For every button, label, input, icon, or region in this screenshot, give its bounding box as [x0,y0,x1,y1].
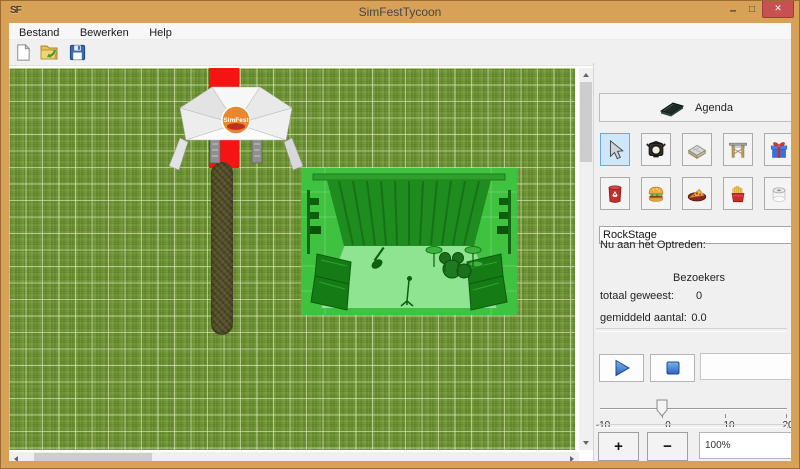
zoom-level-field[interactable]: 100% [699,432,791,459]
gate-icon [727,139,749,161]
trash-can-icon [605,183,625,205]
agenda-button[interactable]: Agenda [599,93,791,122]
tool-select-cursor[interactable] [600,133,630,166]
entrance-tent[interactable]: SimFest [166,80,306,172]
tent-logo-text: SimFest [223,117,249,124]
festival-map[interactable]: SimFest [9,68,575,450]
path-tile-icon [686,139,708,161]
horizontal-scroll-thumb[interactable] [34,453,152,461]
tool-trash-can[interactable] [600,177,630,210]
separator [596,424,787,428]
map-canvas-panel: SimFest [9,65,593,461]
average-visitors-value: 0.0 [659,312,739,324]
save-icon [68,43,87,62]
scroll-right-icon[interactable] [570,456,574,461]
stop-button[interactable] [650,354,695,382]
tool-burger[interactable] [641,177,671,210]
save-file-button[interactable] [66,41,88,63]
stage-preview[interactable] [301,168,517,315]
side-panel: Agenda [593,63,791,461]
scroll-up-icon[interactable] [583,73,589,77]
gift-icon [768,139,790,161]
menu-bar: Bestand Bewerken Help [9,23,791,40]
tool-gift[interactable] [764,133,791,166]
now-performing-label: Nu aan het Optreden: [600,239,706,251]
scroll-left-icon[interactable] [14,456,18,461]
stage-speaker-left [311,254,351,310]
toilet-roll-icon [768,183,790,205]
close-button[interactable]: ✕ [762,1,794,18]
slider-thumb[interactable] [656,399,668,417]
window-title: SimFestTycoon [1,5,799,19]
horizontal-scrollbar[interactable] [9,452,579,461]
toolbar [9,40,791,65]
play-button[interactable] [599,354,644,382]
vertical-scroll-thumb[interactable] [580,82,592,162]
maximize-button[interactable]: □ [743,4,761,15]
tool-pizza[interactable] [682,177,712,210]
burger-icon [645,183,667,205]
pizza-icon [686,183,708,205]
tool-gate[interactable] [723,133,753,166]
new-file-button[interactable] [11,41,33,63]
menu-bestand[interactable]: Bestand [11,26,67,39]
stop-icon [665,360,681,376]
tool-spotlight[interactable] [641,133,671,166]
separator [596,328,787,332]
title-bar[interactable]: SF SimFestTycoon – □ ✕ [1,1,799,23]
tool-path-tile[interactable] [682,133,712,166]
total-visitors-value: 0 [659,290,739,302]
spotlight-icon [645,139,667,161]
fries-icon [727,183,749,205]
zoom-in-button[interactable]: + [598,432,639,461]
status-panel [700,353,791,380]
tool-fries[interactable] [723,177,753,210]
dirt-path[interactable] [211,162,233,335]
app-window: SF SimFestTycoon – □ ✕ Bestand Bewerken … [0,0,800,469]
tool-toilet-roll[interactable] [764,177,791,210]
menu-bewerken[interactable]: Bewerken [72,26,137,39]
new-file-icon [13,43,32,62]
slider-track[interactable] [600,408,787,410]
open-file-icon [39,42,59,62]
visitors-header: Bezoekers [659,272,739,284]
agenda-label: Agenda [695,102,733,114]
scroll-down-icon[interactable] [583,441,589,445]
stage-truss [313,174,505,180]
client-area: Bestand Bewerken Help [9,23,791,461]
agenda-book-icon [659,99,685,117]
play-icon [613,359,631,377]
minimize-button[interactable]: – [723,3,743,17]
cursor-icon [605,139,625,161]
open-file-button[interactable] [38,41,60,63]
zoom-out-button[interactable]: − [647,432,688,461]
vertical-scrollbar[interactable] [579,68,593,450]
menu-help[interactable]: Help [141,26,180,39]
